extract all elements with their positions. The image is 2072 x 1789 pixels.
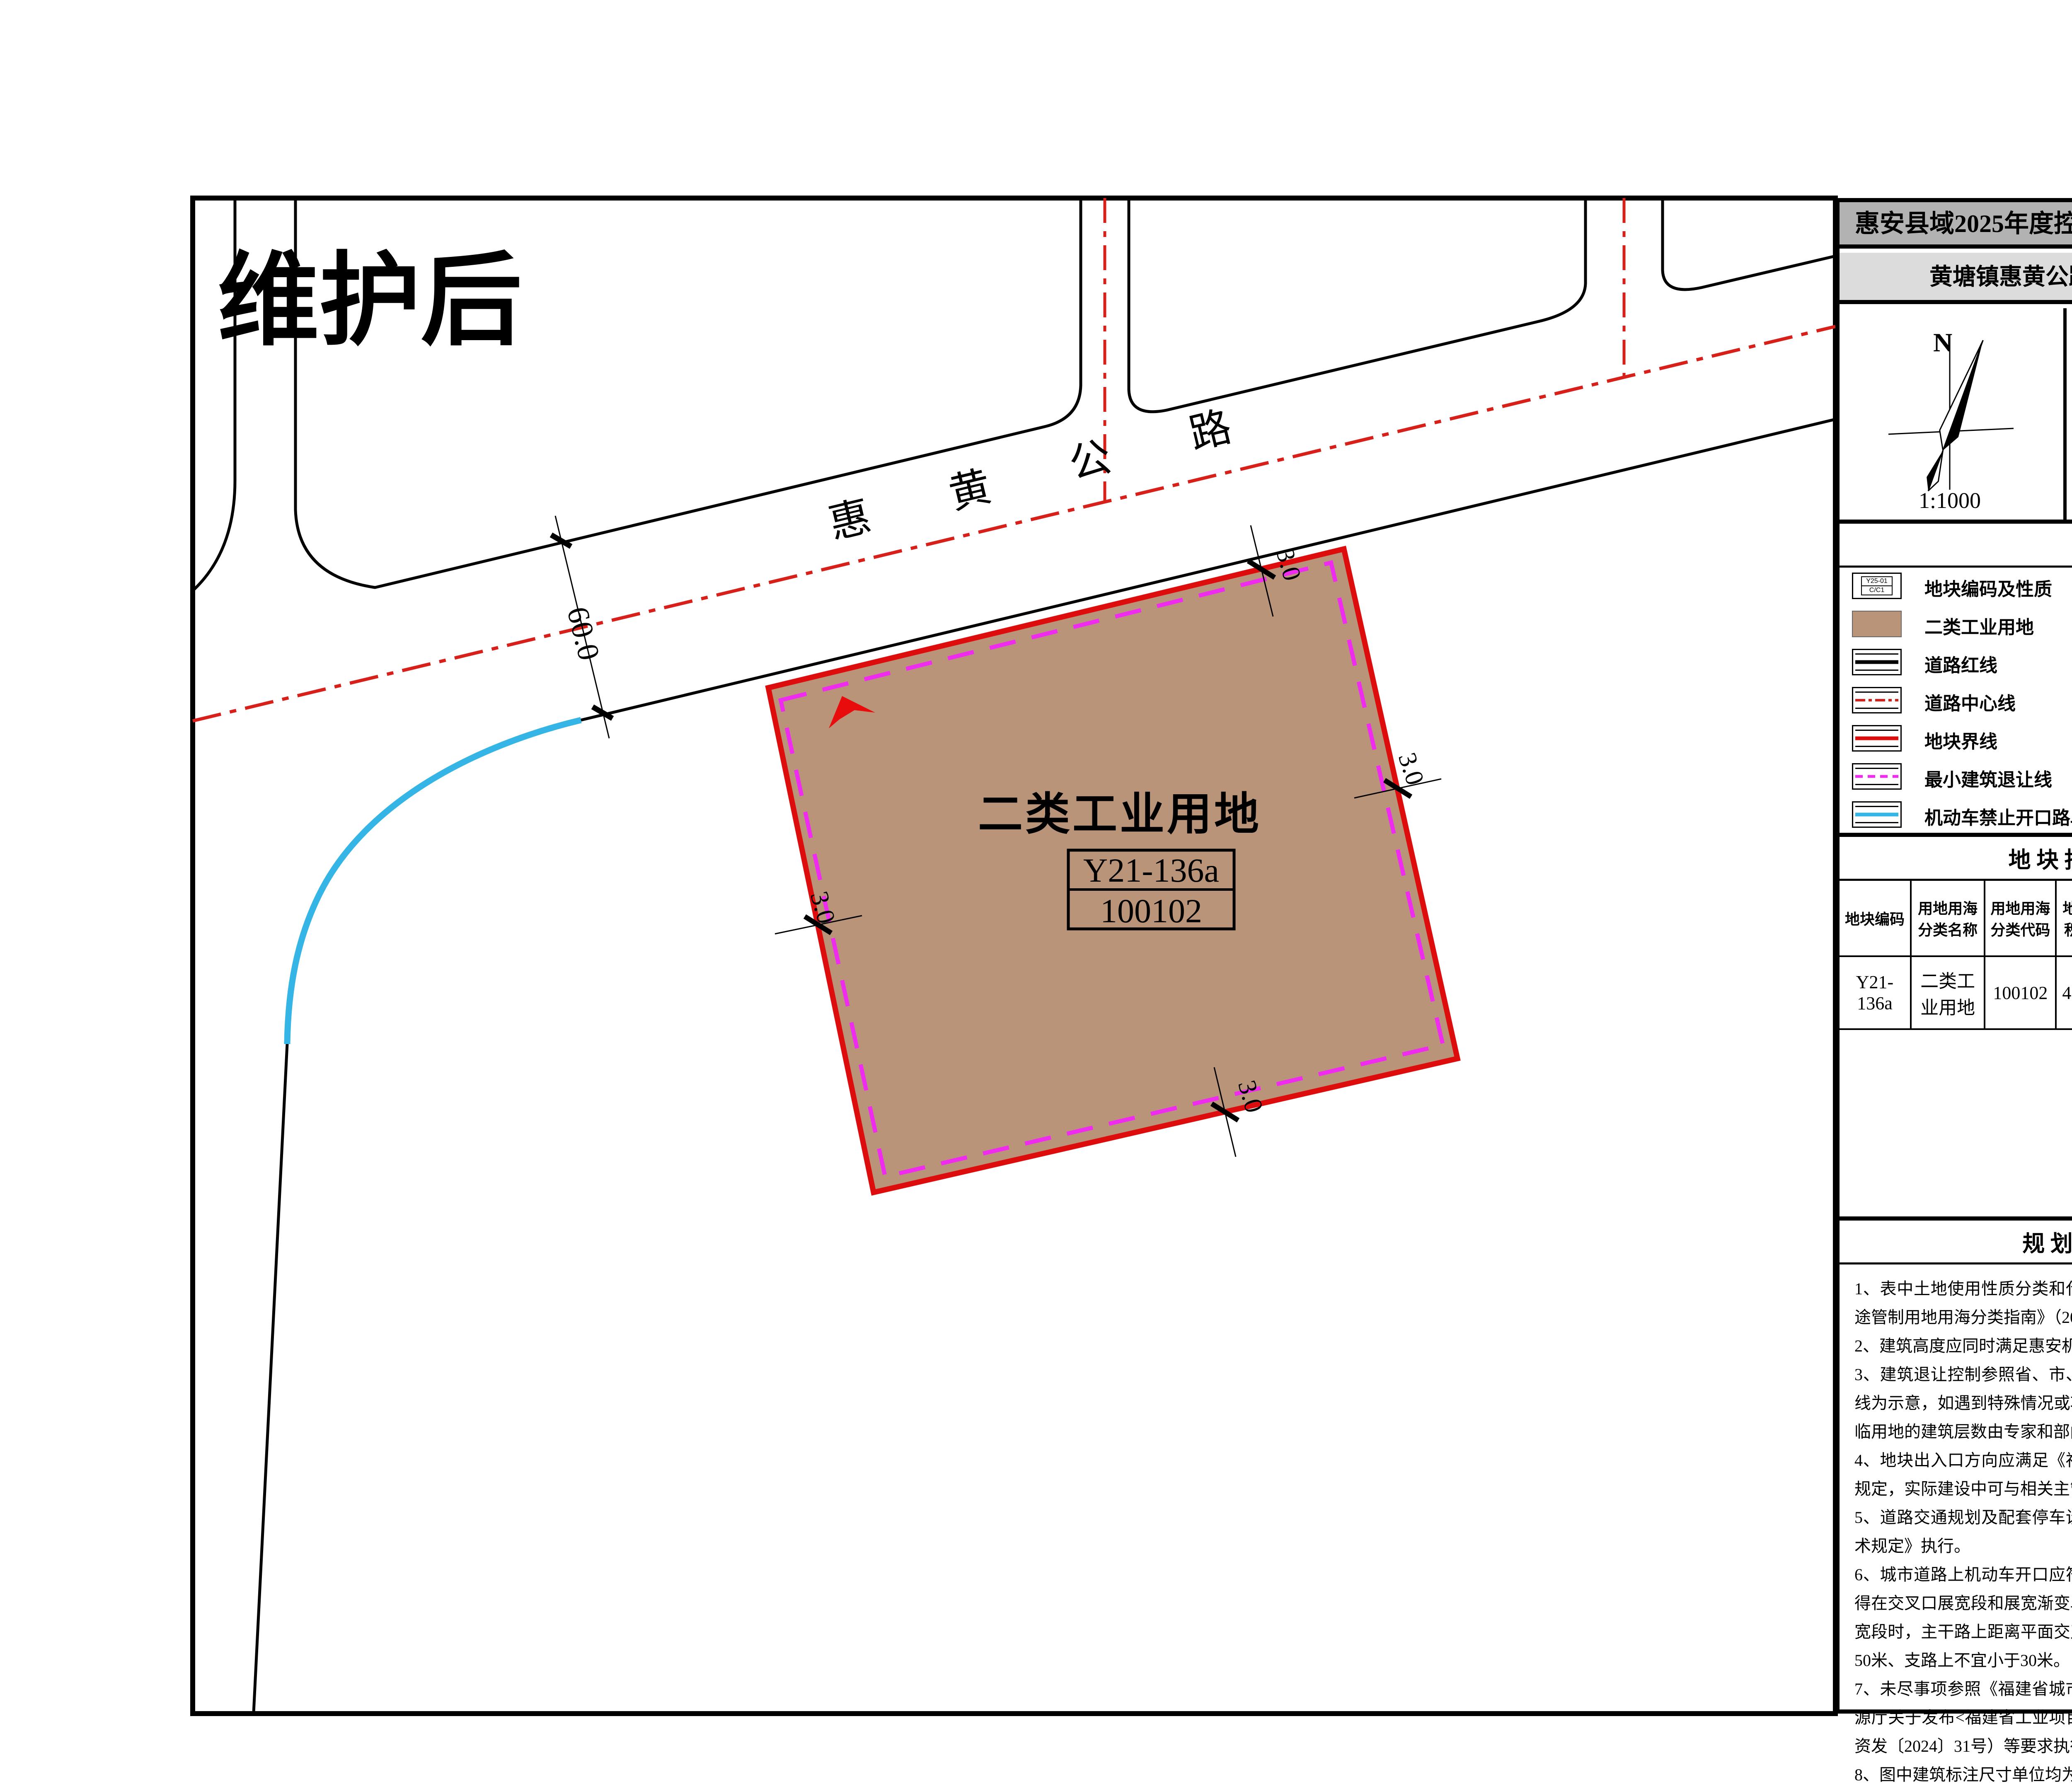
legend-title: 图 例 <box>1840 528 2072 568</box>
col-header: 用地用海分类代码 <box>1985 881 2056 956</box>
symbol-code-top: Y25-01 <box>1862 577 1892 586</box>
parcel-class-code: 100102 <box>1100 892 1202 930</box>
parcel-use-label: 二类工业用地 <box>978 790 1261 839</box>
note-item: 6、城市道路上机动车开口应符合下列规定：交叉口有展宽段时，不得在交叉口展宽段和展… <box>1854 1560 2072 1675</box>
cell-parcel-code: Y21-136a <box>1840 956 1911 1029</box>
legend-item-parcel-code: Y25-01C/C1 地块编码及性质 <box>1852 571 2072 604</box>
setback-line-symbol <box>1852 763 1902 790</box>
legend-label: 二类工业用地 <box>1924 612 2034 639</box>
note-item: 1、表中土地使用性质分类和代码均采用《国土空间调查、规划、用途管制用地用海分类指… <box>1854 1274 2072 1332</box>
note-item: 4、地块出入口方向应满足《福建省城市规划管理技术规定》的相关规定，实际建设中可与… <box>1854 1446 2072 1503</box>
indicator-table-title: 地 块 指 标 一 览 表 <box>1840 841 2072 881</box>
legend-label: 道路中心线 <box>1924 689 2016 715</box>
cell-area: 42167 <box>2056 956 2072 1029</box>
col-header: 用地用海分类名称 <box>1911 881 1985 956</box>
table-data-row: Y21-136a 二类工业用地 100102 42167 1.35-3.0 ≥4… <box>1840 956 2072 1029</box>
panel-title-main: 惠安县域2025年度控规动态维护（第三批次） <box>1840 202 2072 249</box>
plan-map: 60.0 3.0 3.0 3.0 3.0 维护后 惠 黄 公 路 二类工业用地 … <box>0 0 2072 1744</box>
road-centerline-symbol <box>1852 687 1902 713</box>
map-corner-label: 维护后 <box>218 245 522 358</box>
legend-section: 图 例 Y25-01C/C1 地块编码及性质 二类工业用地 道路红线 道路中心线… <box>1840 528 2072 837</box>
cell-use-code: 100102 <box>1985 956 2056 1029</box>
location-sketch <box>2070 308 2072 520</box>
compass-rose <box>1919 337 1992 494</box>
road-redline-symbol <box>1852 649 1902 675</box>
legend-label: 地块界线 <box>1924 727 1997 753</box>
note-item: 7、未尽事项参照《福建省城市规划管理技术规定》、《福建省自然资源厅关于发布<福建… <box>1854 1675 2072 1760</box>
note-item: 3、建筑退让控制参照省、市、县相关技术规定执行，图则中建筑退线为示意，如遇到特殊… <box>1854 1360 2072 1446</box>
legend-label: 地块编码及性质 <box>1924 574 2052 601</box>
no-opening-symbol <box>1852 801 1902 828</box>
info-panel: 惠安县域2025年度控规动态维护（第三批次） 黄塘镇惠黄公路南侧地块规划图则 N… <box>1835 198 2072 1714</box>
planning-notes-section: 规 划 控 制 条 文 1、表中土地使用性质分类和代码均采用《国土空间调查、规划… <box>1840 1225 2072 1709</box>
compass-cell: N 1:1000 <box>1840 308 2067 520</box>
col-header: 地块编码 <box>1840 881 1911 956</box>
cell-use-name: 二类工业用地 <box>1911 956 1985 1029</box>
location-map: 位置示意 <box>2070 308 2072 520</box>
planning-notes-body: 1、表中土地使用性质分类和代码均采用《国土空间调查、规划、用途管制用地用海分类指… <box>1840 1264 2072 1789</box>
legend-item-centerline: 道路中心线 <box>1852 685 2072 718</box>
note-item: 5、道路交通规划及配套停车设施规划参照《福建省城市规划管理技术规定》执行。 <box>1854 1503 2072 1560</box>
parcel-code: Y21-136a <box>1083 851 1219 889</box>
symbol-code-bottom: C/C1 <box>1862 586 1892 595</box>
industrial-land-swatch <box>1852 611 1902 637</box>
parcel-boundary-symbol <box>1852 725 1902 752</box>
legend-item-parcel-boundary: 地块界线 <box>1852 723 2072 757</box>
legend-item-setback: 最小建筑退让线 <box>1852 762 2072 795</box>
map-scale: 1:1000 <box>1919 488 1981 513</box>
col-header: 地块面积(m²) <box>2056 881 2072 956</box>
planning-notes-title: 规 划 控 制 条 文 <box>1840 1225 2072 1264</box>
legend-item-industrial: 二类工业用地 <box>1852 609 2072 642</box>
legend-label: 最小建筑退让线 <box>1924 765 2052 791</box>
legend-label: 机动车禁止开口路段 <box>1924 803 2072 829</box>
note-item: 2、建筑高度应同时满足惠安机场净空保护要求。 <box>1854 1332 2072 1360</box>
parcel-code-symbol: Y25-01C/C1 <box>1852 573 1902 599</box>
legend-label: 道路红线 <box>1924 650 1997 677</box>
compass-location-section: N 1:1000 <box>1840 308 2072 524</box>
legend-item-no-opening: 机动车禁止开口路段 <box>1852 800 2072 833</box>
table-header-row: 地块编码 用地用海分类名称 用地用海分类代码 地块面积(m²) 容积率 建筑系数… <box>1840 881 2072 956</box>
note-item: 8、图中建筑标注尺寸单位均为“米”。 <box>1854 1760 2072 1789</box>
plan-sheet: { "page": { "title_line1": "惠安县域2025年度控规… <box>0 0 2072 1744</box>
panel-title-sub: 黄塘镇惠黄公路南侧地块规划图则 <box>1840 253 2072 304</box>
indicator-table: 地块编码 用地用海分类名称 用地用海分类代码 地块面积(m²) 容积率 建筑系数… <box>1840 881 2072 1030</box>
north-compass: N 1:1000 <box>1840 308 2063 515</box>
indicator-table-section: 地 块 指 标 一 览 表 地块编码 用地用海分类名称 用地用海分类代码 地块面… <box>1840 841 2072 1221</box>
legend-item-road-redline: 道路红线 <box>1852 647 2072 680</box>
